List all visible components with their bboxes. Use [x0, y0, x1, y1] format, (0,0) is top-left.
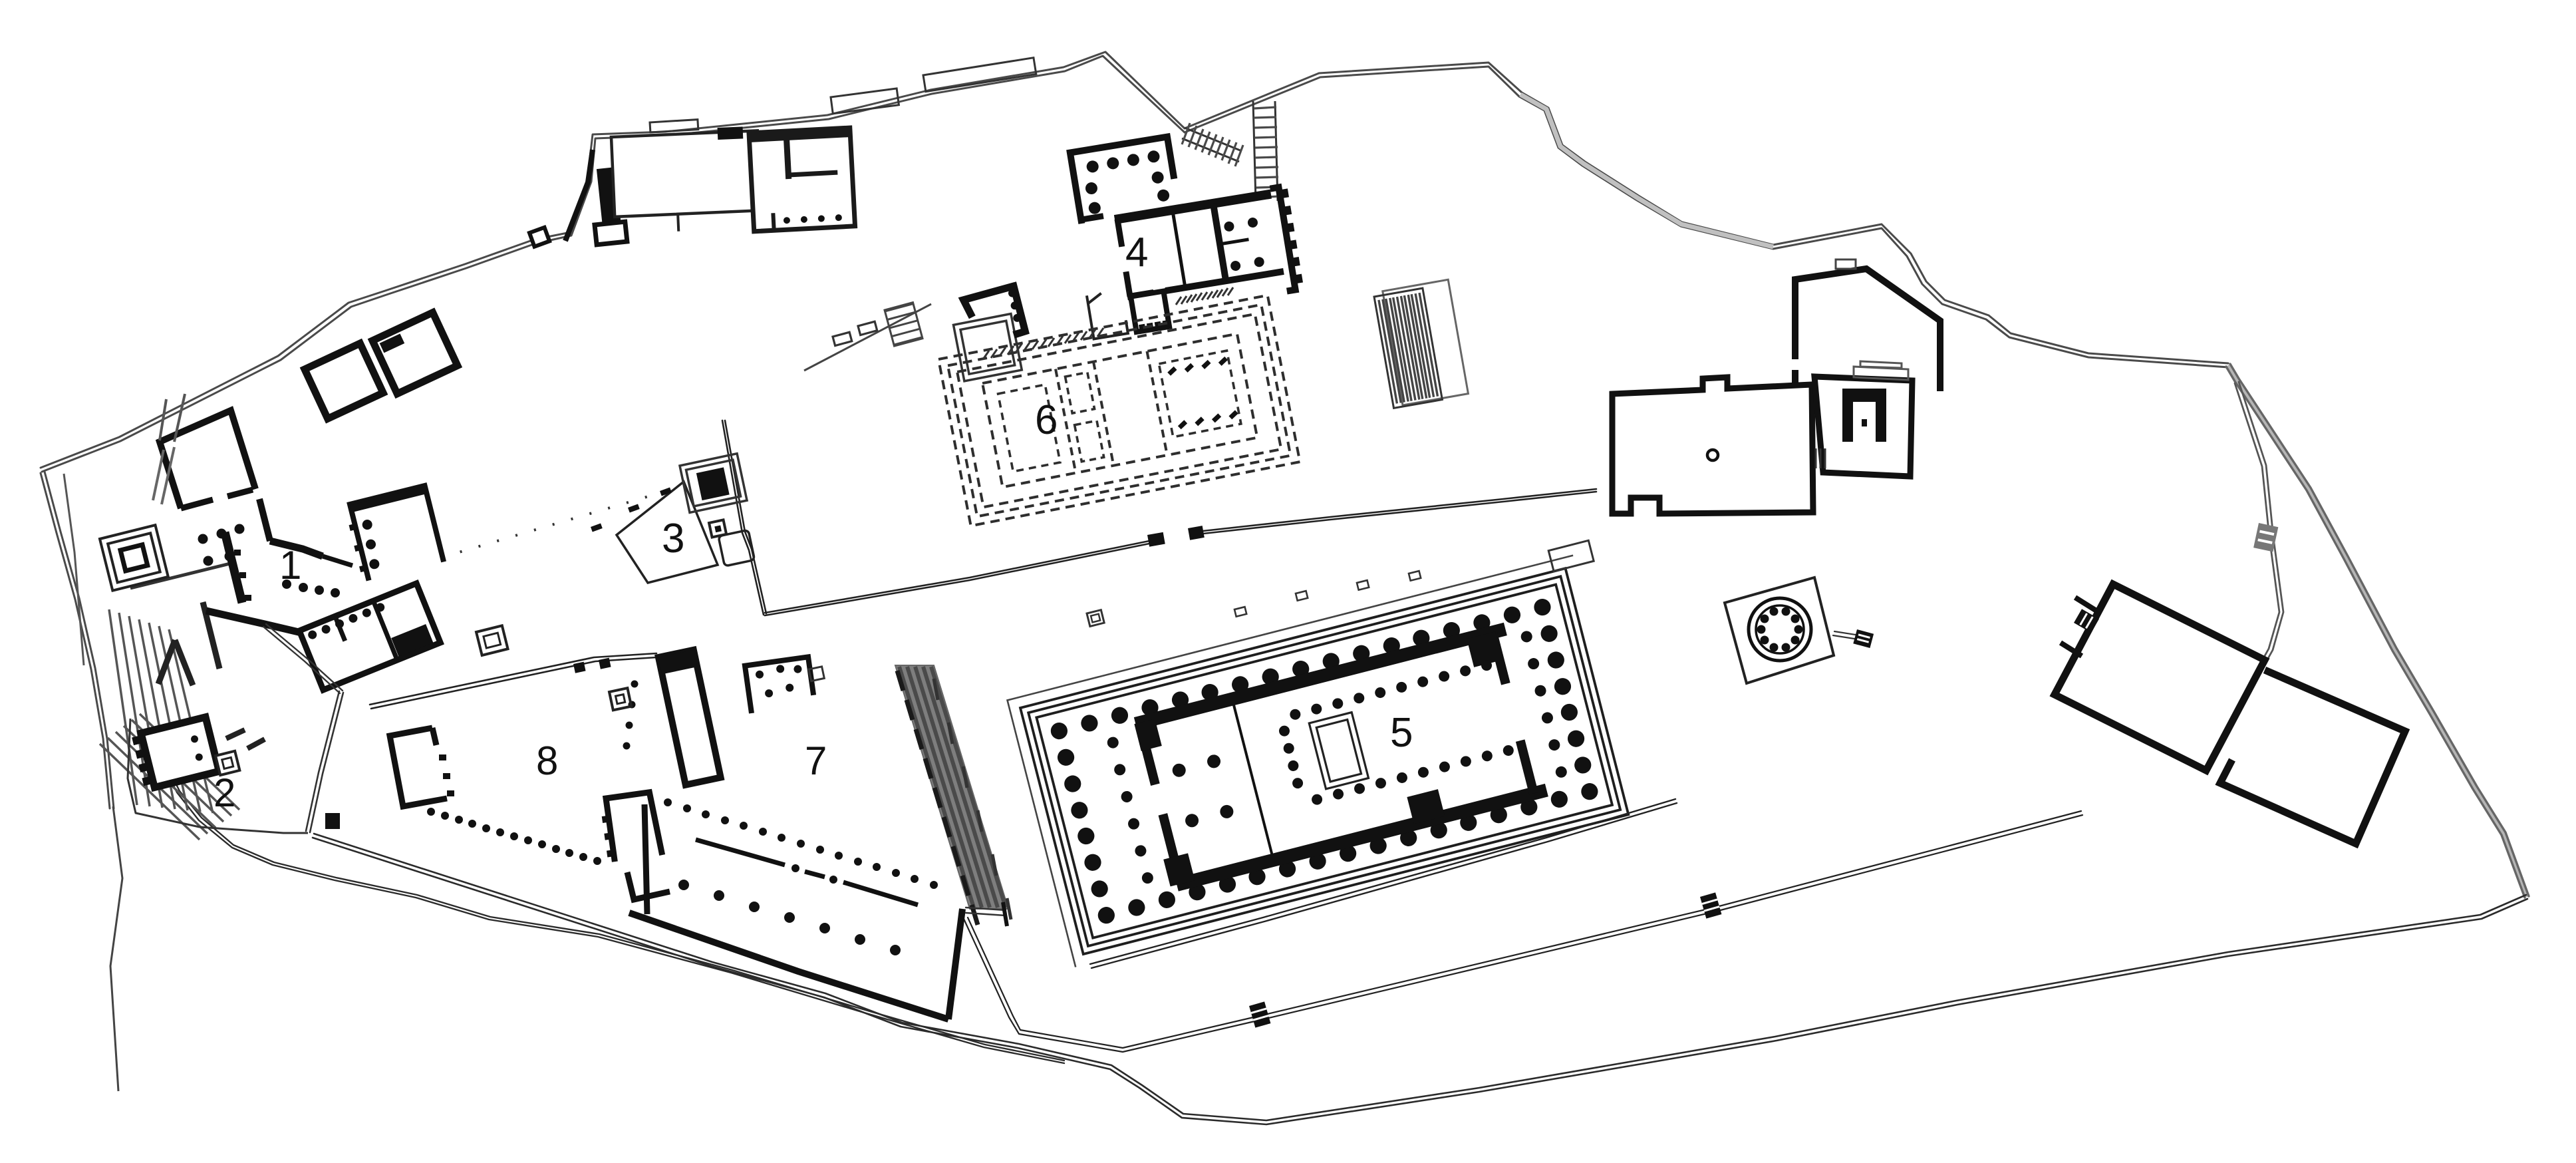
svg-text:3: 3: [662, 516, 684, 562]
svg-text:4: 4: [1125, 230, 1148, 275]
svg-text:8: 8: [536, 739, 558, 783]
svg-text:5: 5: [1390, 710, 1413, 756]
svg-text:7: 7: [805, 739, 827, 783]
svg-text:2: 2: [214, 770, 235, 815]
svg-text:6: 6: [1035, 397, 1058, 443]
svg-text:1: 1: [279, 543, 301, 587]
